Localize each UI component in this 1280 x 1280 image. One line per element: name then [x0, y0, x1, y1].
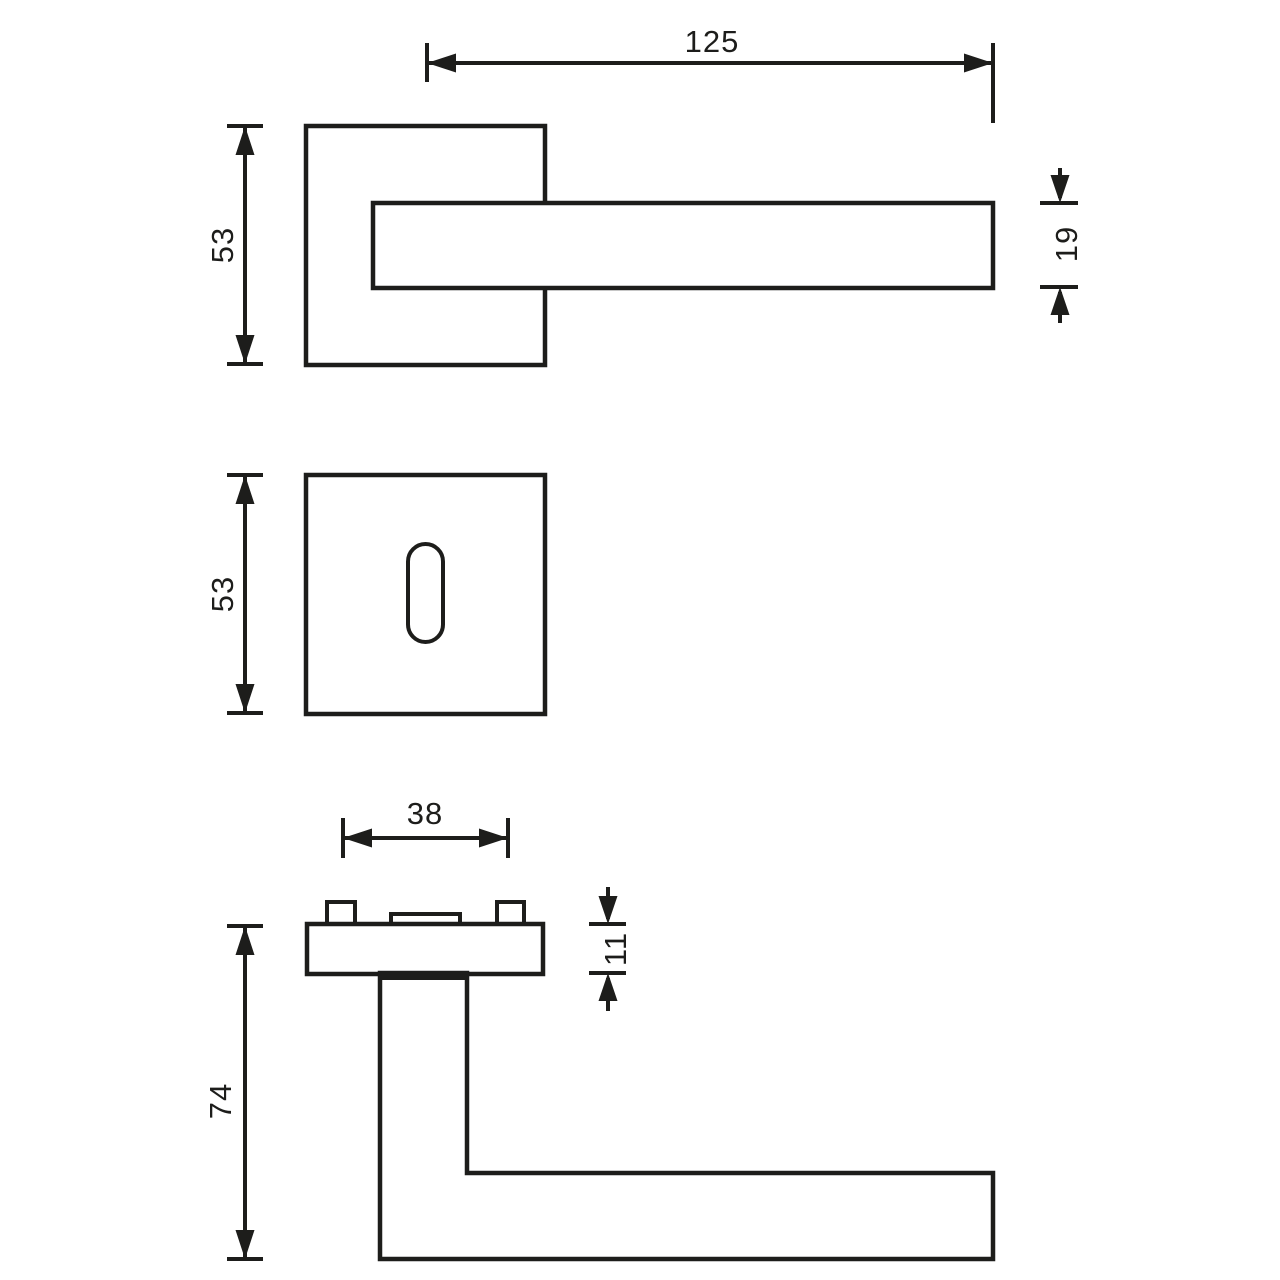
dim-rose-thickness-label: 11	[598, 932, 633, 966]
dim-lever-length-arrow-right	[964, 54, 993, 73]
drawing-page: 125 53 19 53	[0, 0, 1280, 1280]
dim-screw-spacing-arrow-right	[479, 829, 508, 848]
dim-escutcheon-arrow-bottom	[236, 684, 255, 713]
dim-screw-spacing-arrow-left	[343, 829, 372, 848]
dim-lever-thickness-arrow-bottom	[1051, 287, 1070, 315]
dim-escutcheon-arrow-top	[236, 475, 255, 504]
dim-projection-arrow-bottom	[236, 1230, 255, 1259]
side-view	[307, 902, 993, 1259]
dim-escutcheon-height-label: 53	[205, 576, 240, 612]
dim-front-rose-arrow-top	[236, 126, 255, 155]
dim-lever-thickness-label: 19	[1049, 226, 1084, 262]
dim-rose-thickness-arrow-bottom	[599, 973, 618, 1001]
dim-lever-thickness-arrow-top	[1051, 175, 1070, 203]
front-view	[306, 126, 993, 365]
dim-lever-length-arrow-left	[427, 54, 456, 73]
dim-projection-arrow-top	[236, 926, 255, 955]
side-neck-collar	[378, 971, 469, 980]
side-screw-post-left	[327, 902, 355, 924]
dim-front-rose-arrow-bottom	[236, 335, 255, 364]
side-rose-profile	[307, 924, 543, 974]
dim-front-rose-height-label: 53	[205, 227, 240, 263]
dim-rose-thickness-arrow-top	[599, 896, 618, 924]
front-lever-bar	[373, 203, 993, 288]
keyhole-slot	[408, 544, 443, 642]
technical-drawing-canvas: 125 53 19 53	[0, 0, 1280, 1280]
side-lever-l-profile	[380, 973, 993, 1259]
side-screw-post-right	[497, 902, 524, 924]
dim-projection-label: 74	[203, 1083, 238, 1119]
dim-screw-spacing-label: 38	[407, 796, 443, 831]
escutcheon-view	[306, 475, 545, 714]
dim-lever-length-label: 125	[685, 24, 740, 59]
